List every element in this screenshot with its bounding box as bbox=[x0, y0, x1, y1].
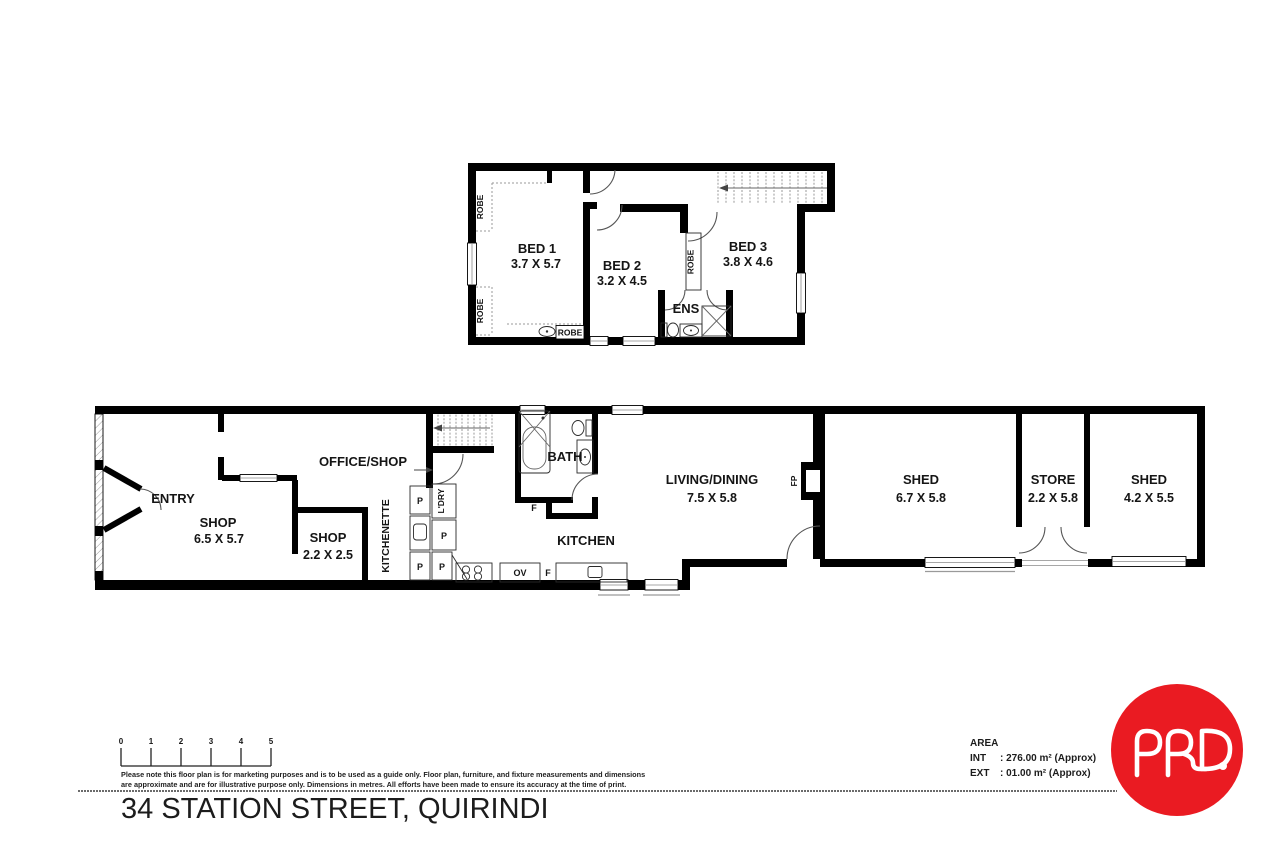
bath-door-arc bbox=[572, 474, 598, 500]
room-label-office-shop: OFFICE/SHOP bbox=[319, 454, 407, 469]
robe-label-bottom-left: ROBE bbox=[475, 298, 485, 323]
address-title: 34 STATION STREET, QUIRINDI bbox=[121, 793, 549, 825]
room-label-shed2: SHED bbox=[1131, 472, 1167, 487]
prd-logo bbox=[1111, 684, 1243, 816]
scale-tick-1: 1 bbox=[149, 737, 154, 746]
scale-tick-5: 5 bbox=[269, 737, 274, 746]
robe-label-bed1: ROBE bbox=[558, 328, 583, 338]
room-label-ens: ENS bbox=[673, 301, 700, 316]
area-ext-label: EXT bbox=[970, 768, 989, 779]
robe-label-top-left: ROBE bbox=[475, 194, 485, 219]
room-dims-shop2: 2.2 X 2.5 bbox=[303, 548, 353, 562]
kitchenette-label: KITCHENETTE bbox=[380, 499, 392, 573]
bed2-door-arc bbox=[597, 205, 622, 230]
area-int-label: INT bbox=[970, 753, 986, 764]
room-dims-living-dining: 7.5 X 5.8 bbox=[687, 491, 737, 505]
room-dims-shop1: 6.5 X 5.7 bbox=[194, 532, 244, 546]
scale-tick-4: 4 bbox=[239, 737, 244, 746]
upper-staircase bbox=[718, 172, 830, 204]
room-label-kitchen: KITCHEN bbox=[557, 533, 615, 548]
room-dims-bed3: 3.8 X 4.6 bbox=[723, 255, 773, 269]
pantry-label: P bbox=[439, 562, 445, 572]
room-label-shop2: SHOP bbox=[310, 530, 347, 545]
prd-logo-circle bbox=[1111, 684, 1243, 816]
room-dims-bed1: 3.7 X 5.7 bbox=[511, 257, 561, 271]
scale-tick-3: 3 bbox=[209, 737, 214, 746]
fridge-label: F bbox=[545, 568, 551, 578]
scale-tick-0: 0 bbox=[119, 737, 124, 746]
ground-floor-plan: ENTRY SHOP 6.5 X 5.7 SHOP 2.2 X 2.5 OFFI… bbox=[95, 406, 1205, 596]
disclaimer: Please note this floor plan is for marke… bbox=[121, 770, 645, 789]
disclaimer-line-1: Please note this floor plan is for marke… bbox=[121, 770, 645, 779]
room-label-shed1: SHED bbox=[903, 472, 939, 487]
room-dims-shed2: 4.2 X 5.5 bbox=[1124, 491, 1174, 505]
laundry-tub-icon bbox=[414, 524, 427, 540]
area-ext-value: : 01.00 m² (Approx) bbox=[1000, 768, 1091, 779]
area-heading: AREA bbox=[970, 738, 998, 749]
entry-splay-top bbox=[104, 468, 141, 489]
floor-plan-page: BED 1 3.7 X 5.7 BED 2 3.2 X 4.5 BED 3 3.… bbox=[0, 0, 1280, 855]
room-label-living-dining: LIVING/DINING bbox=[666, 472, 758, 487]
stair-direction-arrow bbox=[719, 185, 728, 192]
hall-door-arc bbox=[433, 454, 463, 484]
room-label-bed2: BED 2 bbox=[603, 258, 641, 273]
room-label-shop1: SHOP bbox=[200, 515, 237, 530]
store-door-right-arc bbox=[1061, 527, 1087, 553]
scale-bar: 0 1 2 3 4 5 bbox=[119, 737, 274, 766]
room-label-bed3: BED 3 bbox=[729, 239, 767, 254]
area-int-value: : 276.00 m² (Approx) bbox=[1000, 753, 1096, 764]
sink-icon bbox=[588, 567, 602, 578]
area-summary: AREA INT : 276.00 m² (Approx) EXT : 01.0… bbox=[970, 738, 1096, 779]
shopfront-window bbox=[95, 414, 103, 580]
room-label-store: STORE bbox=[1031, 472, 1076, 487]
fireplace-label: FP bbox=[789, 475, 799, 486]
robe-label-middle: ROBE bbox=[686, 249, 696, 274]
floor-plan-image: BED 1 3.7 X 5.7 BED 2 3.2 X 4.5 BED 3 3.… bbox=[0, 0, 1280, 855]
fireplace bbox=[801, 462, 825, 500]
disclaimer-line-2: are approximate and are for illustrative… bbox=[121, 780, 626, 789]
fridge-label: F bbox=[531, 503, 537, 513]
room-label-bed1: BED 1 bbox=[518, 241, 556, 256]
laundry-label: L'DRY bbox=[436, 488, 446, 513]
toilet-icon bbox=[572, 421, 584, 436]
room-dims-shed1: 6.7 X 5.8 bbox=[896, 491, 946, 505]
ens-door-right-arc bbox=[707, 290, 727, 310]
room-dims-store: 2.2 X 5.8 bbox=[1028, 491, 1078, 505]
upper-floor-plan: BED 1 3.7 X 5.7 BED 2 3.2 X 4.5 BED 3 3.… bbox=[468, 163, 836, 346]
room-label-entry: ENTRY bbox=[151, 491, 195, 506]
ground-staircase bbox=[433, 411, 492, 446]
oven-label: OV bbox=[513, 568, 526, 578]
pantry-label: P bbox=[441, 531, 447, 541]
pantry-label: P bbox=[417, 496, 423, 506]
bed1-door-arc bbox=[590, 170, 615, 194]
room-label-bath: BATH bbox=[547, 449, 582, 464]
entry-splay-bottom bbox=[104, 509, 141, 530]
room-dims-bed2: 3.2 X 4.5 bbox=[597, 274, 647, 288]
bed3-door-arc bbox=[688, 212, 717, 241]
pantry-label: P bbox=[417, 562, 423, 572]
scale-tick-2: 2 bbox=[179, 737, 184, 746]
store-door-left-arc bbox=[1019, 527, 1045, 553]
cooktop-icon bbox=[456, 563, 492, 582]
